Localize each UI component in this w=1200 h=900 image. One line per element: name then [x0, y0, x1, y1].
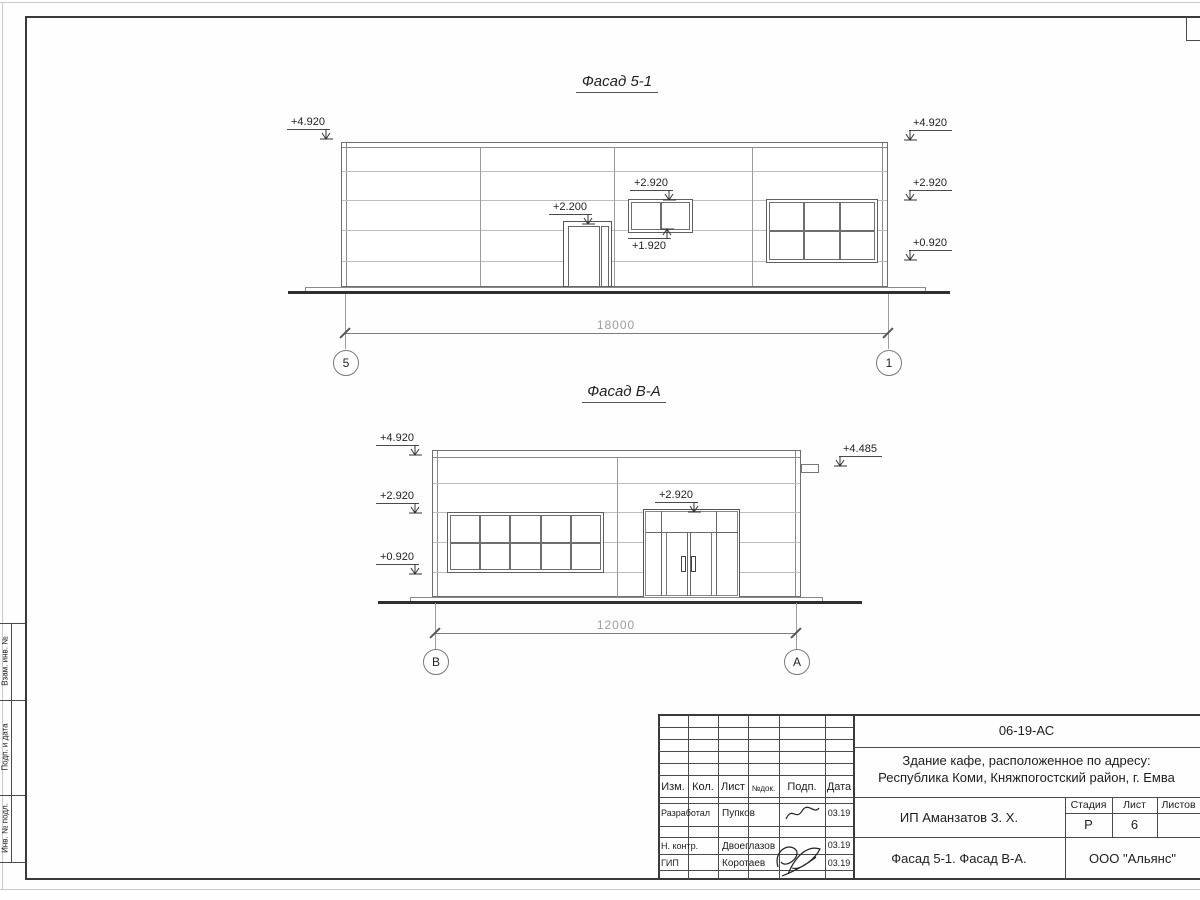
panel-joint — [614, 148, 615, 286]
panel-joint — [752, 148, 753, 286]
stage-header: Стадия — [1065, 799, 1112, 811]
elevation-arrow-icon — [582, 214, 595, 225]
entrance-mullion — [716, 511, 717, 596]
elevation-arrow-icon — [904, 130, 917, 141]
axis-bubble-v: В — [423, 649, 449, 675]
window-grid — [450, 515, 601, 570]
door-handle — [691, 556, 696, 572]
axis-label: В — [432, 655, 440, 669]
signer-date: 03.19 — [825, 858, 853, 868]
dimension-line — [435, 633, 796, 634]
elevation-arrow-icon — [834, 456, 847, 467]
dimension-line — [345, 333, 888, 334]
wall-inner-line — [437, 451, 438, 596]
panel-joint — [480, 148, 481, 286]
axis-bubble-5: 5 — [333, 350, 359, 376]
drawing-sheet: Взам. инв. № Подп. и дата Инв. № подл. Ф… — [0, 0, 1200, 900]
outer-border-bottom — [0, 889, 1200, 890]
entrance-frame-inner — [645, 511, 738, 596]
panel-joint — [617, 458, 618, 597]
facade1-window-large — [766, 199, 878, 263]
frame-left — [25, 16, 27, 880]
elevation-value: +2.920 — [909, 177, 952, 191]
header-data: Дата — [825, 781, 853, 793]
elevation-mark: +2.920 — [655, 489, 698, 503]
extension-line — [796, 603, 797, 649]
elevation-arrow-icon — [904, 190, 917, 201]
door-meeting-stile — [687, 532, 688, 596]
elevation-value: +2.920 — [630, 177, 673, 191]
tb-row-line — [658, 739, 853, 740]
header-list: Лист — [718, 781, 748, 793]
sheet-header: Лист — [1112, 799, 1157, 811]
tb-row-line — [658, 837, 1200, 838]
signature-icon — [783, 804, 821, 824]
tb-row-line — [658, 751, 853, 752]
signer-date: 03.19 — [825, 840, 853, 850]
plinth-line — [410, 597, 823, 598]
facade1-door-leaf — [568, 226, 600, 287]
elevation-value: +4.920 — [909, 117, 952, 131]
header-kol: Кол. — [688, 781, 718, 793]
plinth-line — [305, 287, 926, 288]
wall-inner-line — [882, 143, 883, 286]
extension-line — [888, 294, 889, 349]
signer-role: ГИП — [661, 858, 717, 868]
tb-row-line — [658, 826, 853, 827]
elevation-arrow-icon — [904, 250, 917, 261]
elevation-arrow-icon — [661, 228, 674, 239]
elevation-mark: +1.920 — [628, 238, 671, 252]
elevation-arrow-icon — [409, 564, 422, 575]
frame-top — [25, 16, 1200, 18]
elevation-arrow-icon — [688, 502, 701, 513]
facade2-dimension: 12000 — [580, 618, 652, 632]
signer-role: Разработал — [661, 808, 717, 818]
facade2-title: Фасад В-А — [582, 383, 666, 403]
wall-inner-line — [346, 143, 347, 286]
corner-stamp-box-bottom — [1186, 40, 1200, 41]
tb-row-line — [658, 727, 853, 728]
frame-bottom — [25, 878, 1200, 880]
window-grid — [631, 202, 690, 230]
axis-label: 1 — [886, 356, 893, 370]
signer-role: Н. контр. — [661, 841, 717, 851]
facade2-ground-line — [378, 601, 862, 604]
axis-label: А — [793, 655, 801, 669]
elevation-value: +2.920 — [655, 489, 698, 503]
elevation-value: +0.920 — [376, 551, 419, 565]
elevation-mark: +2.920 — [909, 177, 952, 191]
extension-line — [435, 603, 436, 649]
header-izm: Изм. — [658, 781, 688, 793]
sheet-number: 6 — [1112, 817, 1157, 832]
sheets-header: Листов — [1157, 799, 1200, 811]
tb-row-line — [658, 775, 853, 776]
tb-row-line — [853, 747, 1200, 748]
elevation-arrow-icon — [320, 129, 333, 140]
door-frame-line — [666, 532, 667, 596]
side-cell-line — [0, 862, 25, 863]
elevation-value: +2.920 — [376, 490, 419, 504]
title-block-top — [658, 714, 1200, 716]
elevation-mark: +4.920 — [909, 117, 952, 131]
outer-border-top — [0, 2, 1200, 3]
facade1-dimension: 18000 — [580, 318, 652, 332]
elevation-value: +2.200 — [549, 201, 592, 215]
elevation-value: +0.920 — [909, 237, 952, 251]
tb-row-line — [658, 797, 1200, 798]
elevation-mark: +4.920 — [376, 432, 419, 446]
signer-name: Пупков — [722, 808, 778, 819]
axis-bubble-1: 1 — [876, 350, 902, 376]
axis-label: 5 — [343, 356, 350, 370]
elevation-value: +4.920 — [287, 116, 330, 130]
company-name: ООО "Альянс" — [1065, 851, 1200, 866]
elevation-mark: +4.920 — [287, 116, 330, 130]
window-grid — [769, 202, 875, 260]
elevation-mark: +0.920 — [909, 237, 952, 251]
elevation-mark: +0.920 — [376, 551, 419, 565]
elevation-arrow-icon — [409, 503, 422, 514]
side-cell-divider — [11, 623, 12, 862]
drawing-name: Фасад 5-1. Фасад В-А. — [853, 851, 1065, 866]
doc-number: 06-19-АС — [853, 723, 1200, 738]
side-label-podp: Подп. и дата — [1, 700, 11, 795]
corner-stamp-box — [1186, 17, 1187, 40]
header-podp: Подп. — [779, 781, 825, 793]
tb-row-line — [1065, 813, 1200, 814]
door-frame-line — [711, 532, 712, 596]
stage-value: Р — [1065, 817, 1112, 832]
elevation-arrow-icon — [409, 445, 422, 456]
signer-date: 03.19 — [825, 808, 853, 818]
project-name-line2: Республика Коми, Княжпогостский район, г… — [858, 770, 1195, 785]
elevation-mark: +2.920 — [376, 490, 419, 504]
tb-row-line — [658, 763, 853, 764]
signature-icon — [770, 837, 824, 878]
door-handle — [681, 556, 686, 572]
tb-row-line — [658, 803, 853, 804]
elevation-value: +4.920 — [376, 432, 419, 446]
axis-bubble-a: А — [784, 649, 810, 675]
facade1-door-sidelight — [601, 226, 609, 287]
elevation-arrow-icon — [663, 190, 676, 201]
elevation-mark: +4.485 — [839, 443, 882, 457]
project-name-line1: Здание кафе, расположенное по адресу: — [858, 753, 1195, 768]
facade1-title: Фасад 5-1 — [576, 73, 658, 93]
header-ndoc: №док. — [748, 784, 779, 793]
wall-inner-line — [795, 451, 796, 596]
entrance-mullion — [661, 511, 662, 596]
client-name: ИП Аманзатов З. Х. — [853, 810, 1065, 825]
elevation-value: +4.485 — [839, 443, 882, 457]
elevation-mark: +2.200 — [549, 201, 592, 215]
entrance-transom-line — [646, 532, 738, 533]
facade1-ground-line — [288, 291, 950, 294]
extension-line — [345, 294, 346, 349]
facade2-window — [447, 512, 604, 573]
elevation-mark: +2.920 — [630, 177, 673, 191]
side-label-inv: Инв. № подл. — [1, 795, 11, 862]
elevation-value: +1.920 — [628, 238, 671, 252]
side-label-vzam: Взам. инв. № — [1, 623, 11, 700]
roof-outlet — [801, 464, 819, 473]
